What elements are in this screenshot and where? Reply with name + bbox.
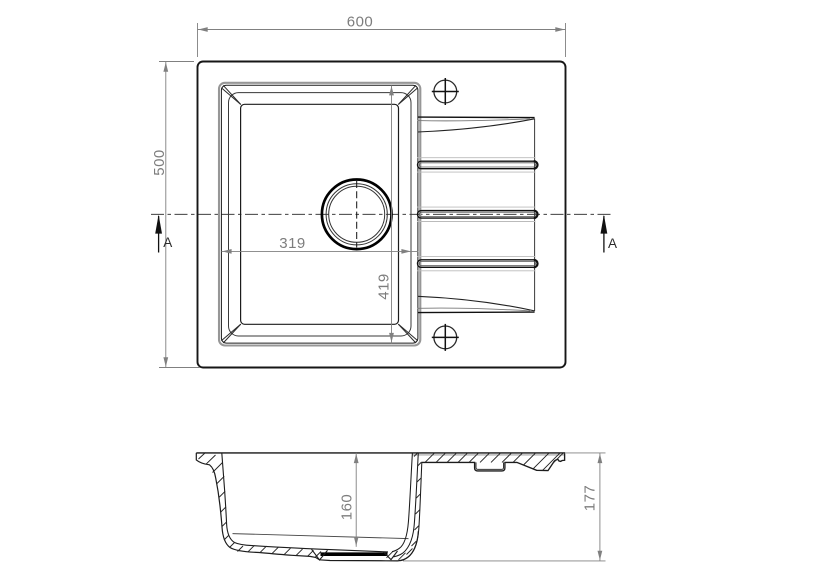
svg-text:160: 160: [339, 494, 356, 521]
svg-text:500: 500: [151, 149, 168, 176]
svg-text:A: A: [608, 236, 617, 251]
svg-text:600: 600: [347, 14, 374, 31]
svg-text:419: 419: [376, 273, 393, 300]
svg-text:177: 177: [582, 485, 599, 512]
svg-text:319: 319: [279, 235, 306, 252]
svg-text:A: A: [163, 235, 172, 250]
